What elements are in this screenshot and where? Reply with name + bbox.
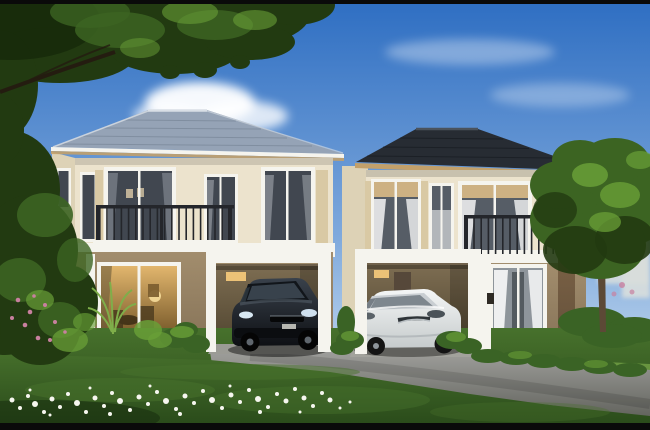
left-window-3 — [261, 167, 315, 244]
scene-image — [0, 0, 650, 430]
left-balcony — [93, 205, 237, 255]
top-black-bar — [0, 0, 650, 4]
wall-lamp — [487, 293, 494, 304]
left-window-0 — [80, 172, 97, 242]
right-window-1 — [371, 179, 421, 256]
left-carport-vent — [226, 272, 246, 281]
right-carport-vent — [374, 270, 389, 278]
right-window-2 — [429, 183, 454, 252]
right-glass-door — [489, 264, 547, 336]
bottom-black-bar — [0, 423, 650, 430]
